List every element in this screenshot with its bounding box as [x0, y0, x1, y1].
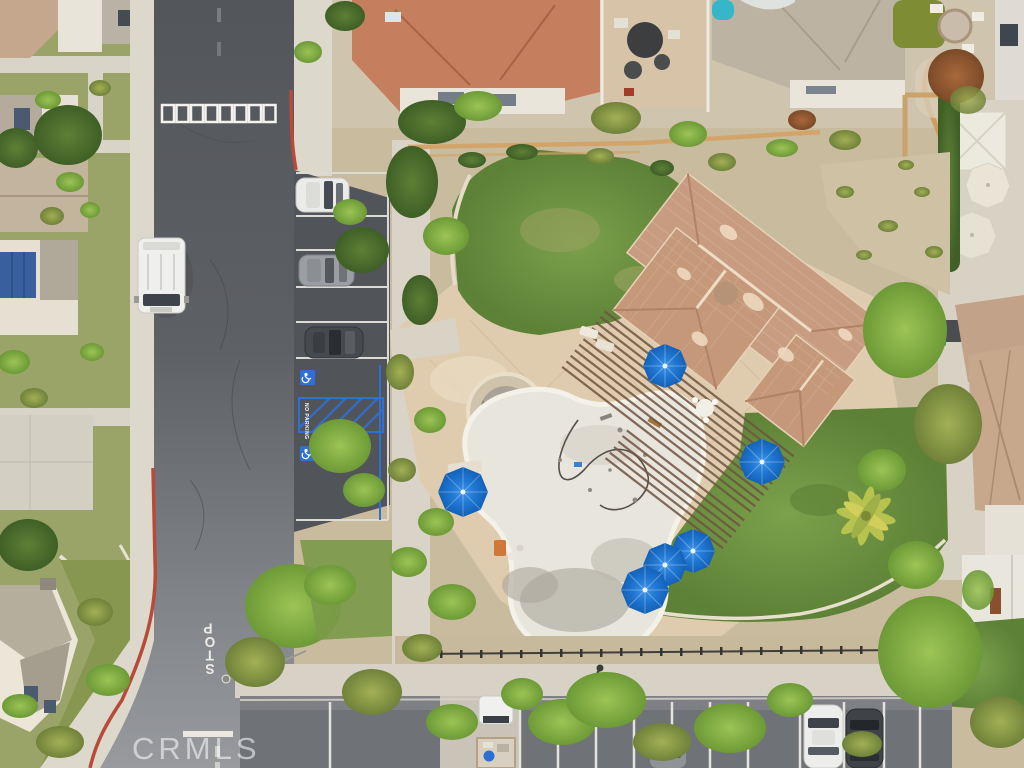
- walkway: [0, 56, 152, 73]
- blue-umbrella: [438, 467, 488, 517]
- dry-grass-patch: [520, 208, 600, 252]
- aerial-photo-svg: NO PARKING S T O P: [0, 0, 1024, 768]
- lane-dash: [217, 8, 221, 22]
- lot-lamp-head: [597, 665, 604, 672]
- patio-rug: [624, 88, 634, 96]
- solar-panel: [0, 252, 36, 298]
- skylight: [385, 12, 401, 22]
- white-van: [134, 238, 193, 318]
- house-wall: [995, 0, 1024, 100]
- house-window: [1000, 24, 1018, 46]
- blue-umbrella: [621, 566, 669, 614]
- blue-umbrella: [739, 439, 785, 485]
- kickboard: [574, 462, 582, 467]
- house-window: [44, 700, 56, 713]
- aerial-photo-canvas: NO PARKING S T O P: [0, 0, 1024, 768]
- blue-umbrella: [643, 344, 687, 388]
- chimney: [40, 578, 56, 590]
- no-parking-text: NO PARKING: [303, 403, 309, 440]
- sidewalk: [294, 0, 332, 176]
- van-windshield: [143, 294, 180, 306]
- crmls-watermark: CRMLS: [132, 731, 261, 767]
- tree: [304, 565, 356, 605]
- lane-dash: [217, 42, 221, 56]
- house-window: [14, 108, 30, 130]
- round-table: [696, 399, 714, 417]
- trailer: [477, 738, 515, 768]
- street-light-head: [222, 675, 230, 683]
- house-window: [806, 86, 836, 94]
- fire-pit: [939, 10, 971, 42]
- patio-furniture: [627, 22, 663, 58]
- construction-equipment: [494, 540, 506, 556]
- house-wall: [58, 0, 102, 52]
- house-wall: [985, 505, 1024, 560]
- white-sedan: [804, 705, 843, 768]
- blue-barrel: [484, 751, 495, 762]
- house-roof: [40, 240, 78, 300]
- stop-letter: P: [203, 621, 212, 638]
- dark-car: [305, 327, 363, 358]
- pool-slide: [712, 0, 734, 20]
